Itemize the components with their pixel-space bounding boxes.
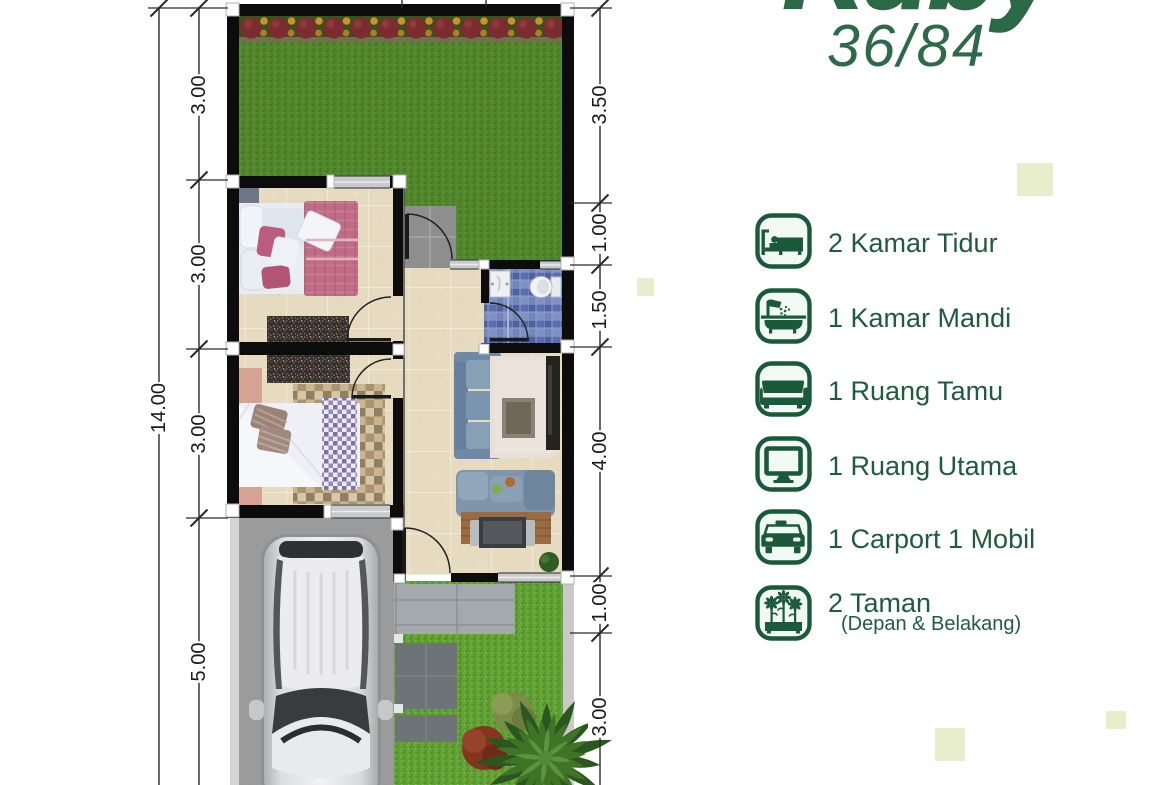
svg-text:3.00: 3.00 [188,415,210,454]
svg-text:3.00: 3.00 [589,698,611,737]
svg-text:4.00: 4.00 [589,432,611,471]
svg-text:3.00: 3.00 [188,76,210,115]
svg-text:1.00: 1.00 [589,214,611,253]
svg-text:3.00: 3.00 [188,245,210,284]
svg-text:3.50: 3.50 [589,86,611,125]
svg-text:1.00: 1.00 [589,584,611,623]
svg-text:1.50: 1.50 [589,291,611,330]
svg-text:14.00: 14.00 [148,383,170,433]
svg-text:5.00: 5.00 [188,643,210,682]
